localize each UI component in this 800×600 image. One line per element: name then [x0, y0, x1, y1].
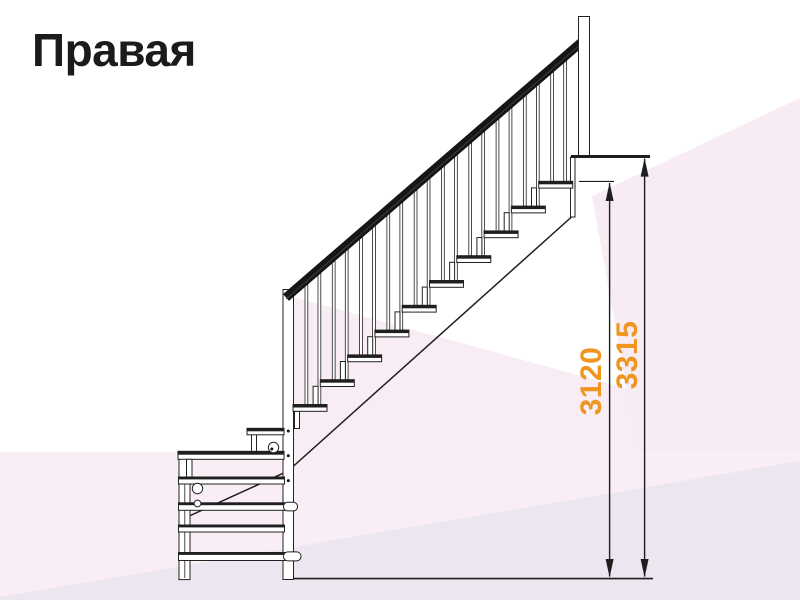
riser-connector — [395, 312, 400, 331]
dimension-label-inner: 3120 — [575, 347, 608, 416]
riser-connector — [313, 386, 318, 405]
staircase-diagram-page: Правая — [0, 0, 800, 600]
riser-connector — [422, 287, 427, 306]
tread-top — [511, 206, 545, 209]
tread-top — [375, 330, 409, 333]
baluster — [496, 119, 499, 231]
riser-connector — [532, 188, 537, 207]
riser-connector — [504, 213, 509, 232]
tread-top — [402, 305, 436, 308]
newel-post — [283, 290, 294, 580]
baluster — [564, 61, 567, 181]
dimension-label-outer: 3315 — [611, 321, 644, 390]
riser-connector — [340, 362, 345, 381]
staircase-drawing: 3120 3315 — [0, 0, 800, 600]
tread-top — [293, 405, 327, 408]
baluster — [387, 214, 390, 330]
tread-top — [484, 231, 518, 234]
baluster — [523, 96, 526, 206]
baluster — [469, 143, 472, 256]
balusters — [305, 61, 567, 405]
baluster — [414, 190, 417, 305]
riser-connector — [477, 238, 482, 257]
baluster — [360, 237, 363, 354]
tread-top — [320, 380, 354, 383]
top-post — [579, 17, 590, 158]
tread-top — [430, 281, 464, 284]
baluster — [551, 72, 554, 181]
tread-top — [539, 181, 573, 184]
riser-connector — [295, 411, 300, 428]
riser-connector — [450, 262, 455, 281]
baluster — [305, 285, 308, 405]
tread-top — [348, 355, 382, 358]
tread-top — [457, 256, 491, 259]
dimension-inner: 3120 — [575, 181, 614, 577]
riser-connector — [368, 337, 373, 356]
baluster — [332, 261, 335, 380]
stringer-lines — [186, 217, 572, 518]
bolt-markers — [192, 430, 289, 507]
baluster — [442, 167, 445, 281]
dimension-outer: 3315 — [611, 158, 649, 577]
